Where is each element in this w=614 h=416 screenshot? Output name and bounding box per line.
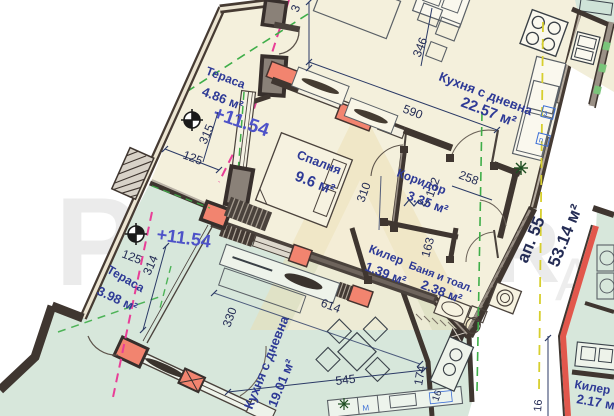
- svg-text:16: 16: [532, 399, 545, 412]
- svg-text:545: 545: [335, 372, 357, 388]
- svg-text:М: М: [362, 403, 370, 413]
